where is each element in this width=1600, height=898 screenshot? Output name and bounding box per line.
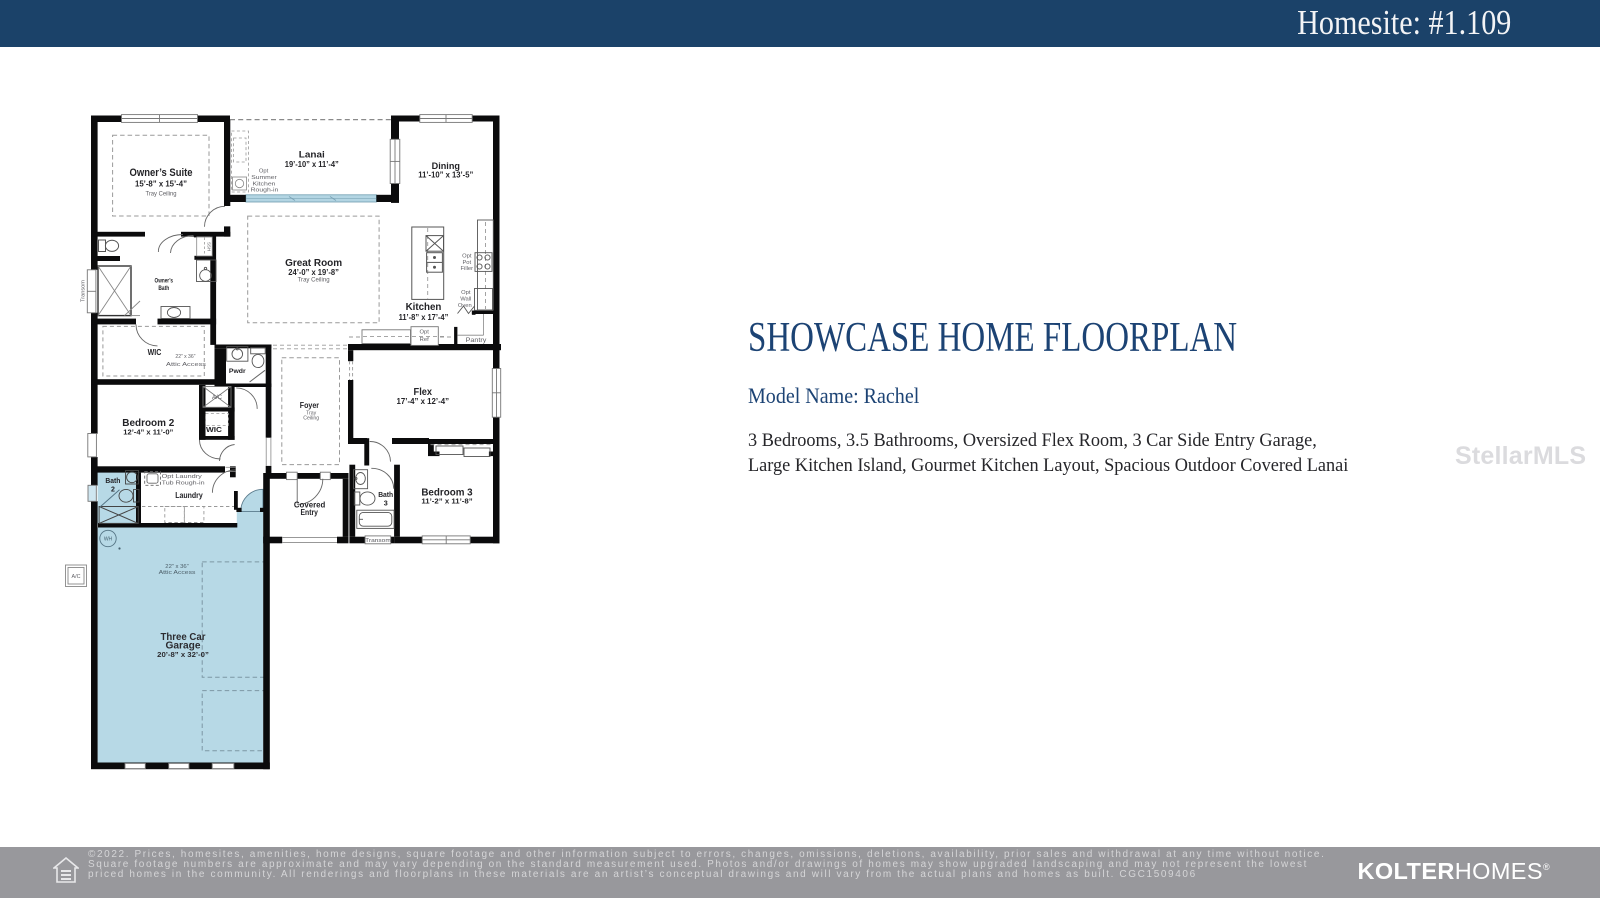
svg-text:Bath: Bath <box>158 285 169 292</box>
svg-text:Opt: Opt <box>420 330 430 336</box>
svg-text:Kitchen: Kitchen <box>406 302 442 313</box>
svg-text:22” x 36”: 22” x 36” <box>165 564 188 570</box>
svg-text:Pantry: Pantry <box>466 338 487 344</box>
svg-text:22” x 36”: 22” x 36” <box>175 354 195 360</box>
svg-text:SSH: SSH <box>207 242 212 251</box>
svg-text:Kitchen: Kitchen <box>253 181 276 187</box>
svg-text:3: 3 <box>384 499 388 508</box>
svg-text:Summer: Summer <box>251 175 277 181</box>
svg-text:Foyer: Foyer <box>300 400 320 410</box>
svg-text:Opt: Opt <box>461 290 471 296</box>
svg-text:Attic Access: Attic Access <box>159 570 196 576</box>
svg-text:Great Room: Great Room <box>285 258 342 269</box>
svg-text:11’-8” x 17’-4”: 11’-8” x 17’-4” <box>399 313 449 322</box>
svg-text:Ref: Ref <box>420 337 429 343</box>
svg-text:15’-8” x 15’-4”: 15’-8” x 15’-4” <box>135 179 187 189</box>
svg-text:17’-4” x 12’-4”: 17’-4” x 12’-4” <box>397 397 450 406</box>
svg-text:19’-10” x 11’-4”: 19’-10” x 11’-4” <box>285 160 339 169</box>
svg-text:24’-0” x 19’-8”: 24’-0” x 19’-8” <box>288 268 339 277</box>
svg-text:Ceiling: Ceiling <box>303 416 319 422</box>
svg-text:Bath: Bath <box>105 478 120 485</box>
svg-text:Owner’s: Owner’s <box>155 277 174 284</box>
svg-text:Tray Ceiling: Tray Ceiling <box>146 190 178 197</box>
svg-text:WIC: WIC <box>148 348 162 357</box>
svg-text:20’-8” x 32’-0”: 20’-8” x 32’-0” <box>157 650 209 659</box>
svg-text:11’-2” x 11’-8”: 11’-2” x 11’-8” <box>421 497 473 506</box>
svg-text:Opt: Opt <box>259 169 269 175</box>
svg-text:Transom: Transom <box>365 538 391 544</box>
svg-text:Tray Ceiling: Tray Ceiling <box>298 277 330 283</box>
svg-text:Attic Access: Attic Access <box>166 362 206 368</box>
svg-text:Rough-in: Rough-in <box>251 188 279 194</box>
svg-text:Opt: Opt <box>462 253 472 259</box>
svg-text:Opt Laundry: Opt Laundry <box>162 474 203 480</box>
svg-text:Pwdr: Pwdr <box>229 368 246 375</box>
svg-text:Owner’s Suite: Owner’s Suite <box>130 167 193 179</box>
svg-text:Tub Rough-in: Tub Rough-in <box>162 480 205 486</box>
svg-text:Laundry: Laundry <box>175 491 203 500</box>
svg-text:WH: WH <box>104 537 113 543</box>
svg-text:A/C: A/C <box>212 395 223 401</box>
svg-text:2: 2 <box>111 487 115 494</box>
svg-text:11’-10” x 13’-5”: 11’-10” x 13’-5” <box>418 171 473 180</box>
svg-text:12’-4” x 11’-0”: 12’-4” x 11’-0” <box>123 427 173 436</box>
svg-text:WIC: WIC <box>206 425 223 434</box>
svg-text:Filler: Filler <box>461 266 474 272</box>
svg-text:Wall: Wall <box>460 297 471 303</box>
svg-text:Oven: Oven <box>458 303 472 309</box>
svg-text:Entry: Entry <box>301 508 319 517</box>
svg-text:Transom: Transom <box>81 280 87 302</box>
svg-text:Pot: Pot <box>462 260 471 266</box>
svg-text:A/C: A/C <box>72 574 81 580</box>
